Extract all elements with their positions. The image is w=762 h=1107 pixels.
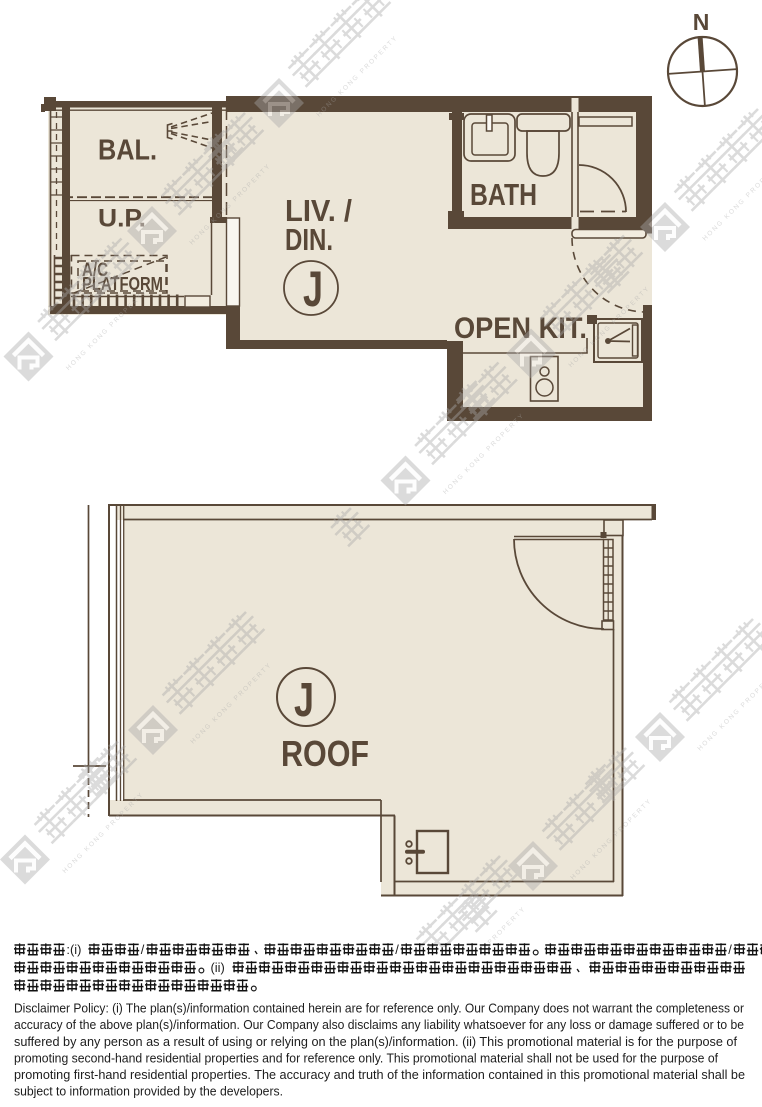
svg-text:J: J (303, 261, 323, 317)
svg-text:suffered by any person as a re: suffered by any person as a result of us… (14, 1034, 737, 1049)
svg-text:J: J (294, 674, 314, 727)
svg-text:/: / (141, 942, 145, 957)
svg-text::(i): :(i) (66, 942, 81, 957)
svg-text:Disclaimer Policy: (i) The pla: Disclaimer Policy: (i) The plan(s)/infor… (14, 1001, 745, 1016)
svg-text:subject to information provide: subject to information provided by the d… (14, 1084, 283, 1099)
svg-text:DIN.: DIN. (285, 222, 333, 257)
svg-text:ROOF: ROOF (281, 733, 369, 774)
svg-text:N: N (693, 9, 710, 35)
svg-text:(ii): (ii) (211, 960, 225, 975)
svg-text:accuracy of the above plan(s)/: accuracy of the above plan(s)/informatio… (14, 1017, 744, 1032)
svg-text:promoting second-hand resident: promoting second-hand residential proper… (14, 1050, 718, 1065)
svg-text:promoting first-hand residenti: promoting first-hand residential propert… (14, 1067, 745, 1082)
svg-text:/: / (395, 942, 399, 957)
svg-text:/: / (728, 942, 732, 957)
svg-text:BAL.: BAL. (98, 135, 157, 167)
svg-text:BATH: BATH (470, 177, 537, 212)
